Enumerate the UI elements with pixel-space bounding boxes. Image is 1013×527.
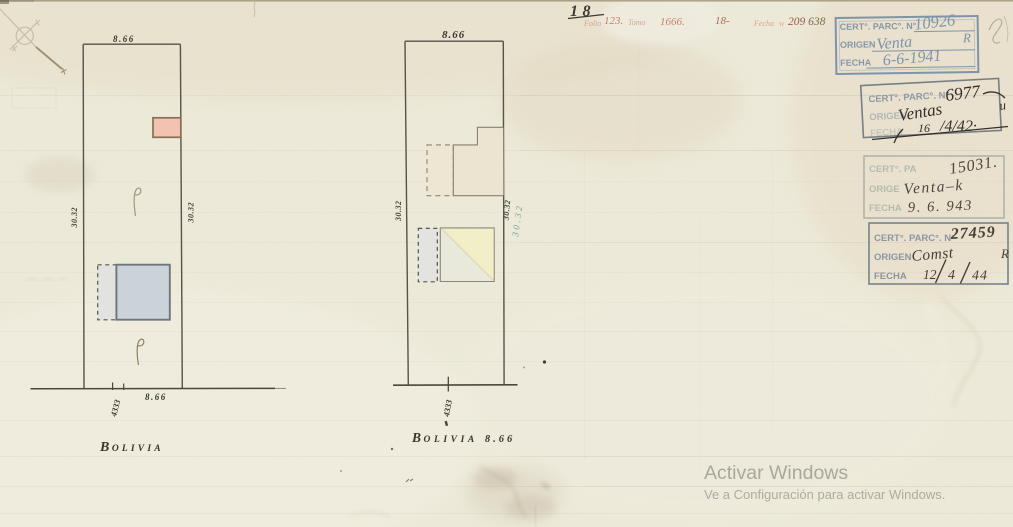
svg-text:Folio: Folio [583,19,601,28]
svg-text:ORIGE: ORIGE [869,184,900,195]
svg-text:8.66: 8.66 [145,392,167,402]
svg-text:R: R [1000,246,1009,261]
svg-text:Ve a Configuración para activa: Ve a Configuración para activar Windows. [704,487,945,502]
svg-text:44: 44 [972,269,988,284]
svg-text:CERT°. PA: CERT°. PA [869,164,917,175]
svg-text:FECHA: FECHA [840,57,872,67]
svg-text:FECHA: FECHA [869,203,902,214]
svg-text:30.32: 30.32 [501,199,512,221]
svg-text:12: 12 [923,267,937,282]
svg-text:27459: 27459 [949,224,996,243]
svg-text:FECHA: FECHA [874,271,907,282]
svg-text:ORIGEN: ORIGEN [874,252,912,263]
svg-text:1666.: 1666. [660,16,685,28]
svg-text:ORIGEN: ORIGEN [840,39,876,49]
svg-text:30.32: 30.32 [70,207,79,229]
svg-text:CERT°. PARC°. N°: CERT°. PARC°. N° [874,233,955,244]
svg-text:16: 16 [918,121,930,135]
svg-text:9. 6. 943: 9. 6. 943 [908,198,974,216]
svg-text:18-: 18- [715,15,730,27]
svg-text:w: w [779,19,785,28]
svg-text:CERT°. PARC°. N°: CERT°. PARC°. N° [840,21,917,32]
svg-text:8.66: 8.66 [113,34,135,44]
svg-text:4: 4 [948,268,955,283]
svg-text:30.32: 30.32 [187,202,196,224]
svg-text:8.66: 8.66 [442,29,465,41]
svg-text:123.: 123. [604,15,623,27]
svg-text:Tomo: Tomo [628,18,646,27]
svg-text:30.32: 30.32 [394,201,403,223]
svg-text:209 638: 209 638 [788,16,826,28]
svg-text:Fecha: Fecha [753,19,774,28]
svg-text:R: R [962,30,971,45]
svg-text:Activar Windows: Activar Windows [704,462,848,484]
